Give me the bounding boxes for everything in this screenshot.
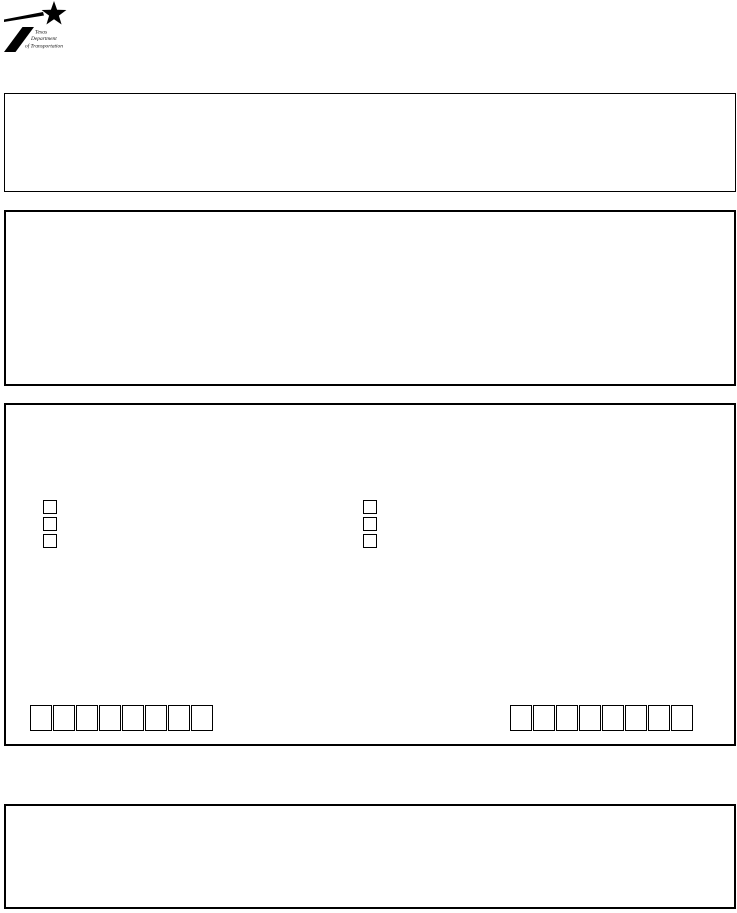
txdot-star-flag-icon: Texas Department of Transportation: [2, 1, 117, 59]
char-box[interactable]: [579, 705, 601, 731]
logo-text-line-2: Department: [30, 36, 57, 42]
checkbox[interactable]: [43, 534, 57, 548]
char-box[interactable]: [510, 705, 532, 731]
checkbox[interactable]: [363, 534, 377, 548]
char-box[interactable]: [556, 705, 578, 731]
char-box[interactable]: [99, 705, 121, 731]
logo-text-line-1: Texas: [35, 30, 47, 36]
char-box[interactable]: [191, 705, 213, 731]
section-main-box: [4, 403, 736, 746]
form-page: Texas Department of Transportation: [0, 0, 737, 913]
txdot-logo: Texas Department of Transportation: [2, 1, 117, 59]
checkbox[interactable]: [363, 517, 377, 531]
checkbox[interactable]: [43, 500, 57, 514]
checkbox[interactable]: [43, 517, 57, 531]
char-box[interactable]: [648, 705, 670, 731]
logo-text-line-3: of Transportation: [25, 43, 63, 50]
char-box[interactable]: [145, 705, 167, 731]
checkbox-column-left: [43, 500, 57, 548]
section-header-box: [4, 93, 736, 192]
char-box[interactable]: [625, 705, 647, 731]
charbox-row-left: [30, 705, 213, 731]
char-box[interactable]: [53, 705, 75, 731]
checkbox-column-right: [363, 500, 377, 548]
checkbox[interactable]: [363, 500, 377, 514]
char-box[interactable]: [533, 705, 555, 731]
charbox-row-right: [510, 705, 693, 731]
char-box[interactable]: [602, 705, 624, 731]
char-box[interactable]: [30, 705, 52, 731]
section-upper-box: [4, 210, 736, 386]
char-box[interactable]: [76, 705, 98, 731]
char-box[interactable]: [168, 705, 190, 731]
char-box[interactable]: [671, 705, 693, 731]
char-box[interactable]: [122, 705, 144, 731]
section-footer-box: [4, 804, 736, 909]
